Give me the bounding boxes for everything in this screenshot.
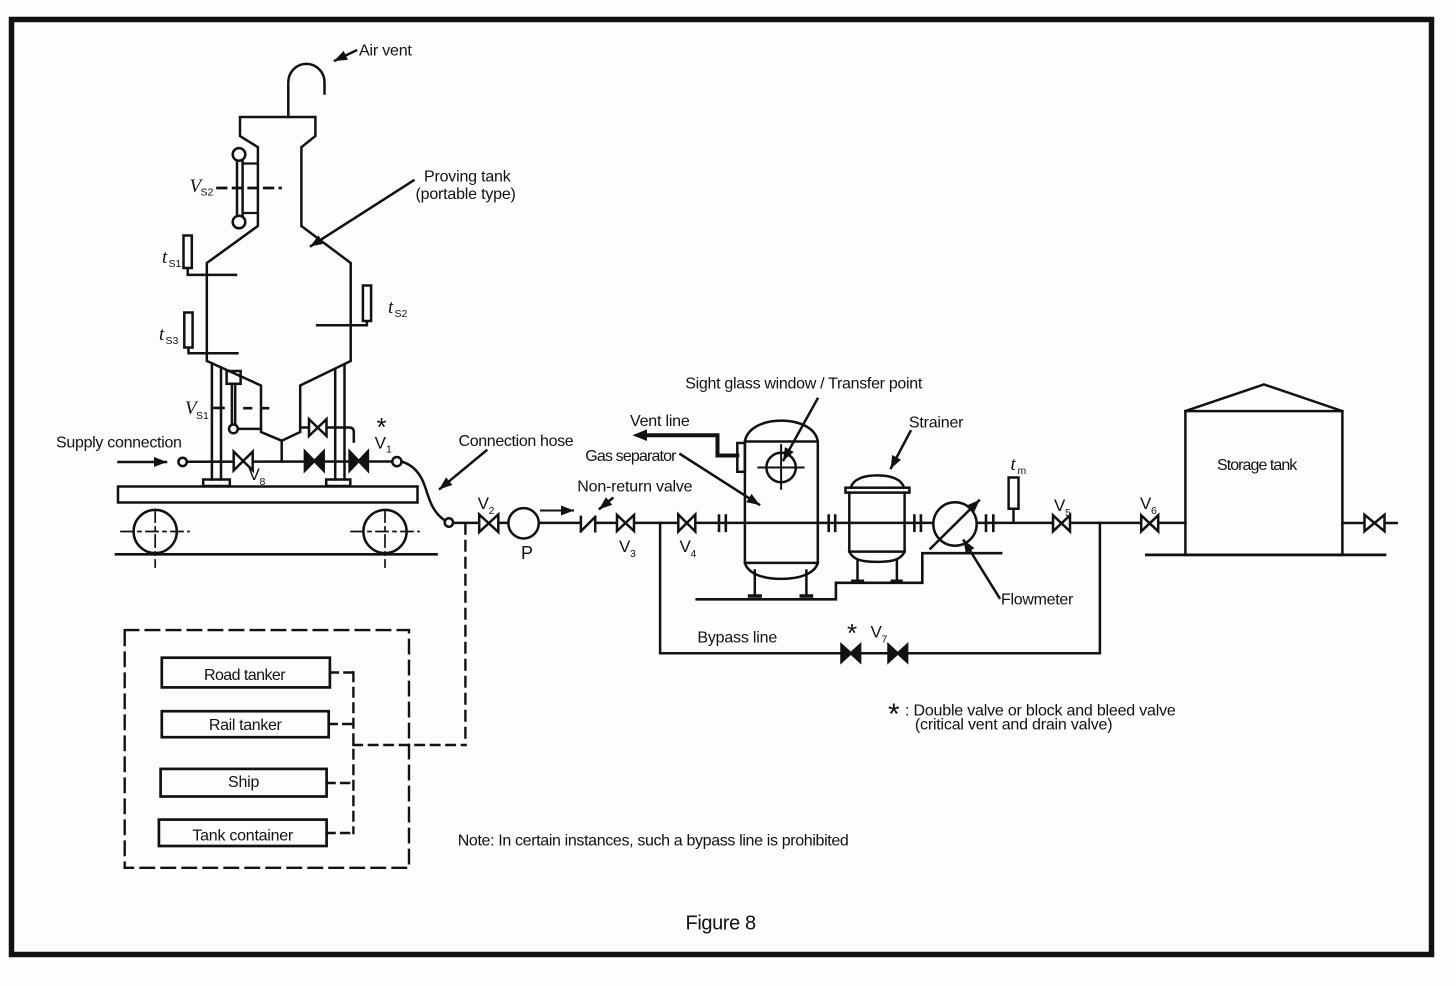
svg-text:V: V bbox=[375, 434, 387, 453]
svg-text:Proving tank: Proving tank bbox=[424, 169, 512, 186]
svg-text:P: P bbox=[521, 543, 533, 563]
svg-text:3: 3 bbox=[630, 548, 636, 560]
svg-text:Ship: Ship bbox=[228, 774, 260, 791]
svg-text:5: 5 bbox=[1065, 507, 1071, 519]
svg-text:Rail tanker: Rail tanker bbox=[209, 717, 283, 734]
svg-text:Tank container: Tank container bbox=[192, 828, 293, 845]
svg-text:t: t bbox=[159, 324, 165, 345]
svg-text:1: 1 bbox=[386, 444, 392, 456]
svg-text:t: t bbox=[388, 297, 394, 318]
svg-text:(portable type): (portable type) bbox=[416, 186, 516, 203]
svg-text:Air vent: Air vent bbox=[359, 43, 412, 60]
svg-text:Sight glass window / Transfer: Sight glass window / Transfer point bbox=[685, 376, 923, 393]
svg-text:7: 7 bbox=[882, 634, 888, 646]
svg-text:4: 4 bbox=[691, 548, 697, 560]
svg-text:Strainer: Strainer bbox=[909, 415, 964, 432]
svg-text:S2: S2 bbox=[201, 187, 214, 199]
svg-text:Road tanker: Road tanker bbox=[204, 667, 286, 684]
svg-text:S2: S2 bbox=[395, 308, 408, 320]
svg-text:Figure 8: Figure 8 bbox=[686, 913, 756, 935]
svg-text:8: 8 bbox=[260, 476, 266, 488]
svg-text:Supply connection: Supply connection bbox=[56, 435, 182, 452]
svg-text:Flowmeter: Flowmeter bbox=[1001, 592, 1074, 609]
svg-text:t: t bbox=[162, 247, 168, 268]
svg-text:Vent line: Vent line bbox=[630, 413, 690, 430]
svg-text:*: * bbox=[847, 618, 857, 648]
svg-text:Note: In certain instances, su: Note: In certain instances, such a bypas… bbox=[458, 833, 849, 850]
svg-text:S1: S1 bbox=[196, 410, 209, 422]
svg-text:Connection hose: Connection hose bbox=[459, 433, 574, 450]
svg-text:Non-return valve: Non-return valve bbox=[577, 479, 692, 496]
svg-text:S3: S3 bbox=[166, 335, 179, 347]
svg-text:(critical vent and drain valve: (critical vent and drain valve) bbox=[915, 717, 1112, 734]
svg-text:2: 2 bbox=[489, 505, 495, 517]
svg-text:S1: S1 bbox=[169, 258, 182, 270]
svg-text:Gas separator: Gas separator bbox=[585, 448, 677, 465]
svg-text:Bypass line: Bypass line bbox=[697, 630, 777, 647]
svg-text:t: t bbox=[1011, 454, 1017, 475]
svg-text:Storage tank: Storage tank bbox=[1217, 457, 1298, 474]
svg-text:6: 6 bbox=[1151, 505, 1157, 517]
svg-text:*: * bbox=[888, 698, 900, 731]
svg-text:m: m bbox=[1018, 465, 1027, 477]
